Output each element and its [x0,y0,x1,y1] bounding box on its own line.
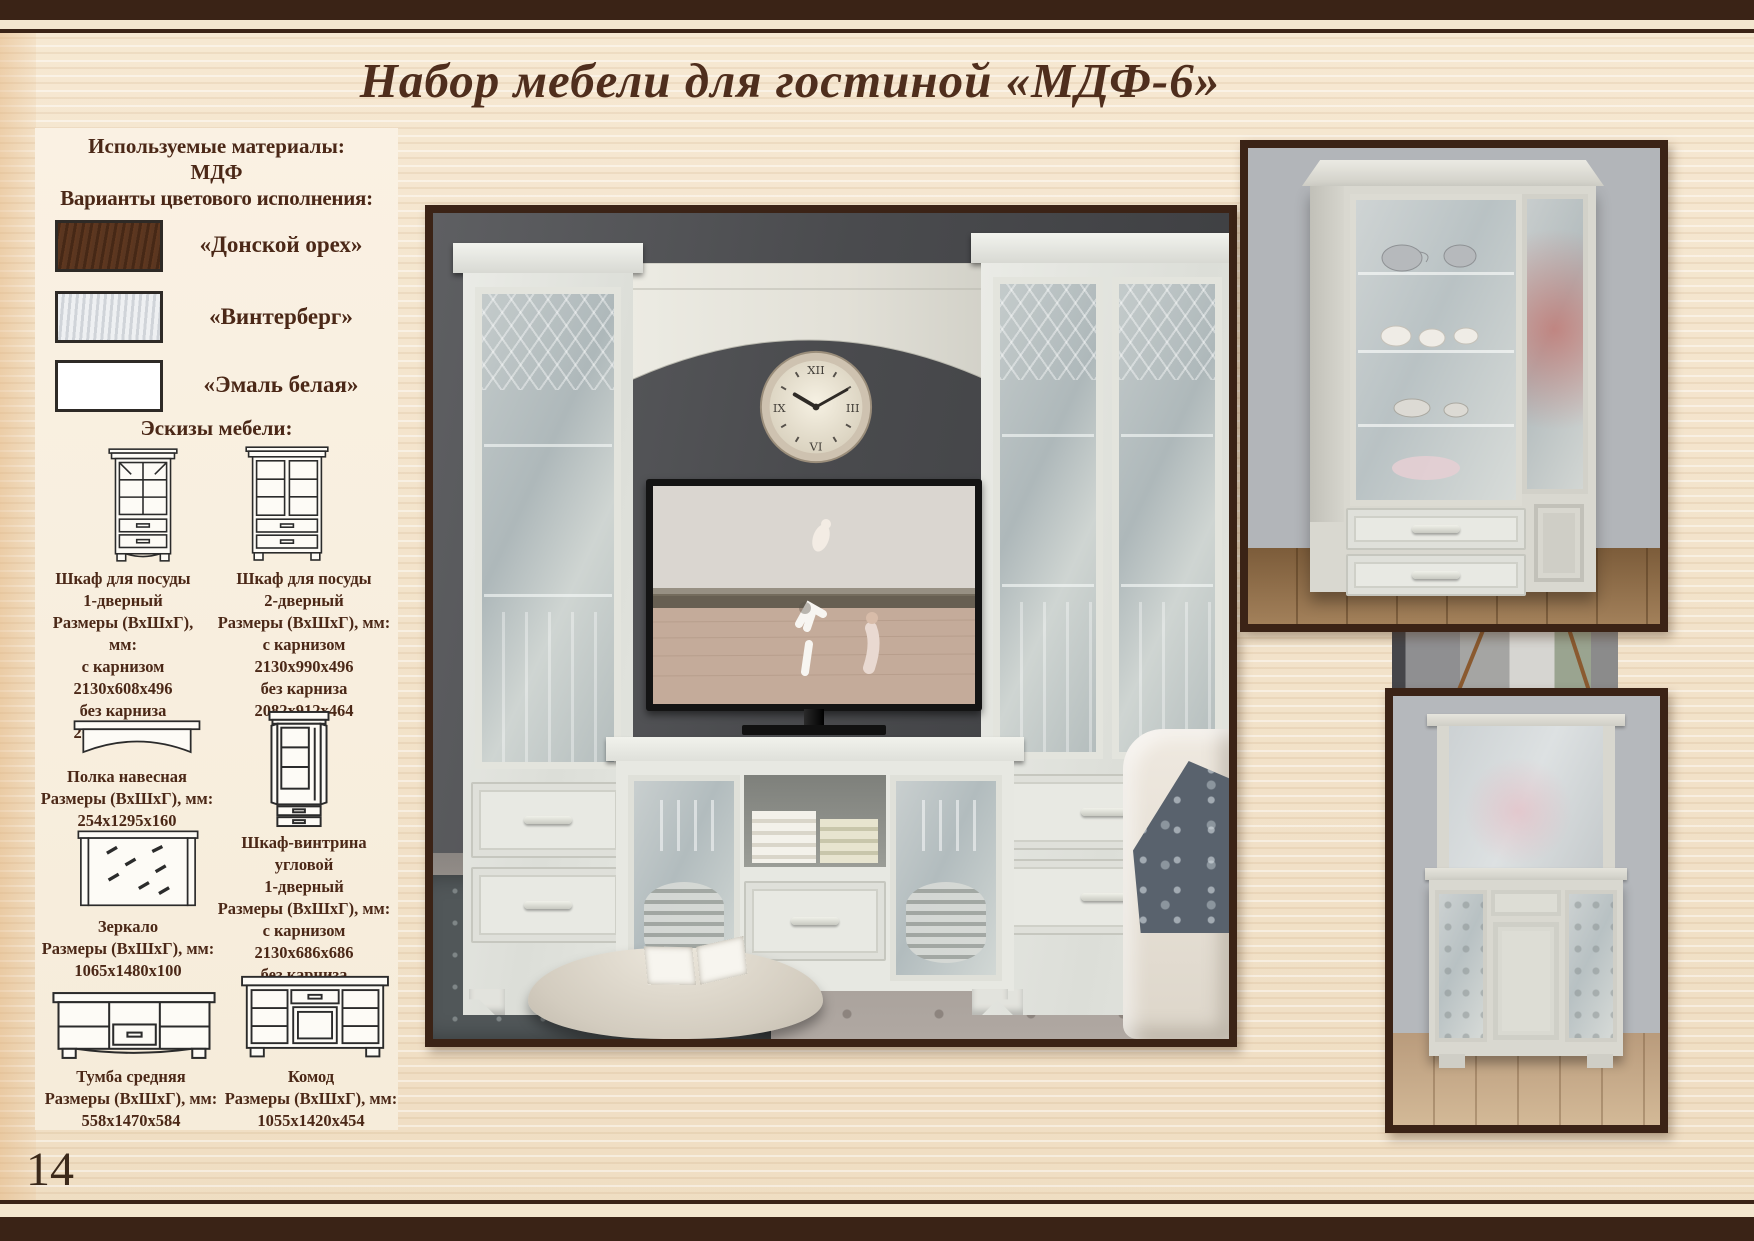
materials-heading: Используемые материалы: [35,134,398,159]
color-label-emal-belaya: «Эмаль белая» [167,372,395,398]
mirror-post-left [1437,726,1449,868]
stemware-glasses [1000,602,1096,752]
drawer-handle [1081,808,1129,816]
open-shelf [744,775,886,867]
drawer [1346,508,1526,550]
svg-text:III: III [846,401,860,415]
glass-shelf [1358,272,1514,275]
clock-face: XIIIIIVIIX [758,348,874,466]
svg-text:IX: IX [773,401,787,415]
drawer-section [471,773,625,952]
drawer-handle [524,816,572,824]
chest-center-door [1493,922,1559,1040]
tv-frame [646,479,982,711]
glass-shelf [484,594,612,597]
tv-stand-drawing [47,988,221,1064]
sketch-corner-vitrine-icon [267,710,331,828]
drawer-handle [791,917,839,925]
sketch-caption-tv-stand: Тумба средняя Размеры (ВхШхГ), мм: 558х1… [31,1066,231,1132]
display-cabinet-1-door [463,243,633,1015]
glass-shelf [1002,584,1094,587]
drawer [471,867,625,943]
drawer-handle [1081,893,1129,901]
pouf [528,948,823,1039]
chest-center-drawer [1491,890,1561,916]
color-swatch-donskoy-oreh [55,220,163,272]
sketch-mirror-icon [60,828,216,912]
drawer-handle [1412,525,1460,533]
glass-shelf [484,444,612,447]
catalog-page: { "page": { "title": "Набор мебели для г… [0,0,1754,1241]
silverware-contents [1356,200,1504,488]
svg-text:VI: VI [809,440,823,454]
stemware-glasses [482,612,614,762]
color-swatch-emal-belaya [55,360,163,412]
mirror-cornice [1427,714,1625,726]
photo-hanger-partial [1392,632,1618,688]
drawer-handle [524,901,572,909]
tv-screen [653,486,975,704]
chest-body [1429,880,1623,1056]
beige-books [820,819,878,863]
cabinet-cornice [971,233,1237,263]
drawer [744,881,886,961]
chest-foot [1439,1054,1465,1068]
top-frame-bar [0,0,1754,20]
mirror-post-right [1603,726,1615,868]
drawer [471,782,625,858]
glass-door [475,287,621,769]
page-title: Набор мебели для гостиной «МДФ-6» [0,52,1580,109]
drawer [1346,554,1526,596]
wall-shelf-drawing [63,716,211,760]
glass-shelf [1358,424,1514,427]
glass-door-right [890,775,1002,981]
chest-glass-door-right [1565,890,1617,1042]
wall-clock: XIIIIIVIIX [758,348,874,466]
sketch-caption-wall-shelf: Полка навесная Размеры (ВхШхГ), мм: 254х… [35,766,219,832]
television [646,479,982,739]
chest-drawing [237,974,393,1064]
sketch-caption-cupboard-2-door: Шкаф для посуды 2-дверный Размеры (ВхШхГ… [213,568,395,722]
material-value: МДФ [35,160,398,185]
page-number: 14 [26,1142,74,1197]
tv-stand-base [742,725,886,735]
sketch-caption-chest: Комод Размеры (ВхШхГ), мм: 1055х1420х454 [223,1066,399,1132]
mirror-drawing [60,828,216,912]
chest-glass-door-left [1435,890,1487,1042]
glassware [908,800,984,850]
corner-vitrine-cabinet [1310,160,1596,592]
glassware [646,800,722,850]
top-frame-strip [0,20,1754,29]
top-frame-line [0,29,1754,33]
bottom-frame-strip [0,1204,1754,1217]
glass-door-left [993,277,1103,759]
colors-heading: Варианты цветового исполнения: [35,186,398,211]
sketch-cupboard-1-door-icon [87,446,199,564]
photo-mirror-chest [1385,688,1668,1133]
vitrine-right-glass [1522,194,1588,494]
bottom-frame-bar [0,1217,1754,1241]
main-photo-living-room-set: XIIIIIVIIX [425,205,1237,1047]
drawer-handle [1412,571,1460,579]
sketch-cupboard-2-door-icon [227,444,347,564]
color-label-vinterberg: «Винтерберг» [167,304,395,330]
glass-shelf [1121,434,1213,437]
svg-text:XII: XII [807,363,824,377]
sketch-wall-shelf-icon [63,716,211,760]
color-label-donskoy-oreh: «Донской орех» [167,232,395,258]
center-drawer-slot [744,881,886,961]
left-wood-grain [0,33,36,1200]
sketch-caption-mirror: Зеркало Размеры (ВхШхГ), мм: 1065х1480х1… [35,916,221,982]
cupboard-1-door-drawing [87,446,199,564]
open-book [644,939,748,989]
sketch-tv-stand-icon [47,988,221,1064]
plate-stack [906,882,986,963]
cabinet-cornice [453,243,643,273]
vitrine-side-door [1534,504,1584,582]
sketches-heading: Эскизы мебели: [35,416,398,441]
chest-top [1425,868,1627,880]
materials-panel: Используемые материалы: МДФ Варианты цве… [35,128,398,1130]
glass-lattice [1000,284,1096,380]
photo-corner-vitrine [1240,140,1668,632]
vitrine-glass-door [1350,194,1522,506]
mirror-chest-unit [1425,714,1627,1088]
glass-shelf [1002,434,1094,437]
vitrine-cornice [1302,160,1604,186]
cupboard-2-door-drawing [227,444,347,564]
glass-lattice [1119,284,1215,380]
white-books [752,811,816,863]
chest-foot [1587,1054,1613,1068]
glass-shelf [1358,350,1514,353]
glass-lattice [482,294,614,390]
tv-cabinet-top [606,737,1024,761]
corner-vitrine-drawing [267,710,331,828]
mirror-glass [1449,726,1603,868]
glass-shelf [1121,584,1213,587]
glass-door-right [1112,277,1222,759]
sketch-chest-icon [237,974,393,1064]
color-swatch-vinterberg [55,291,163,343]
vitrine-left-panel [1310,186,1344,522]
tv-picture-family-field [653,486,975,704]
cabinet-foot [972,989,1008,1015]
vitrine-drawers [1346,504,1526,600]
